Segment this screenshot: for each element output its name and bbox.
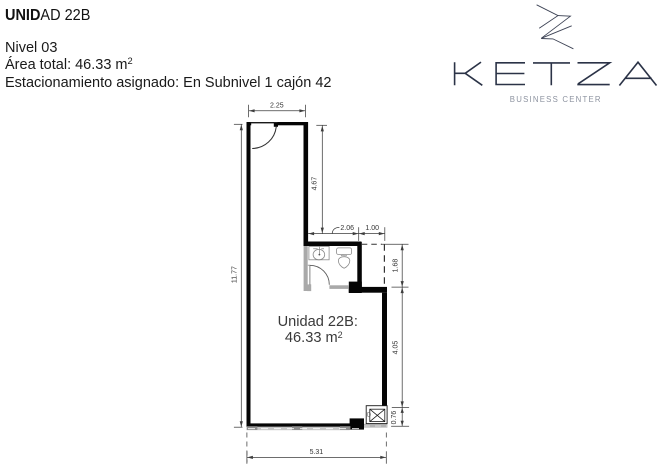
svg-text:4.67: 4.67 — [312, 177, 319, 191]
svg-text:2.06: 2.06 — [340, 225, 354, 232]
svg-text:11.77: 11.77 — [232, 266, 239, 283]
svg-text:46.33 m2: 46.33 m2 — [285, 330, 343, 346]
svg-text:1.68: 1.68 — [392, 259, 399, 273]
svg-text:Unidad 22B:: Unidad 22B: — [278, 314, 358, 330]
svg-text:0.76: 0.76 — [391, 411, 398, 425]
svg-text:2.25: 2.25 — [270, 103, 284, 110]
svg-text:5.31: 5.31 — [310, 449, 324, 456]
svg-text:1.00: 1.00 — [365, 225, 379, 232]
svg-text:4.05: 4.05 — [393, 341, 400, 355]
